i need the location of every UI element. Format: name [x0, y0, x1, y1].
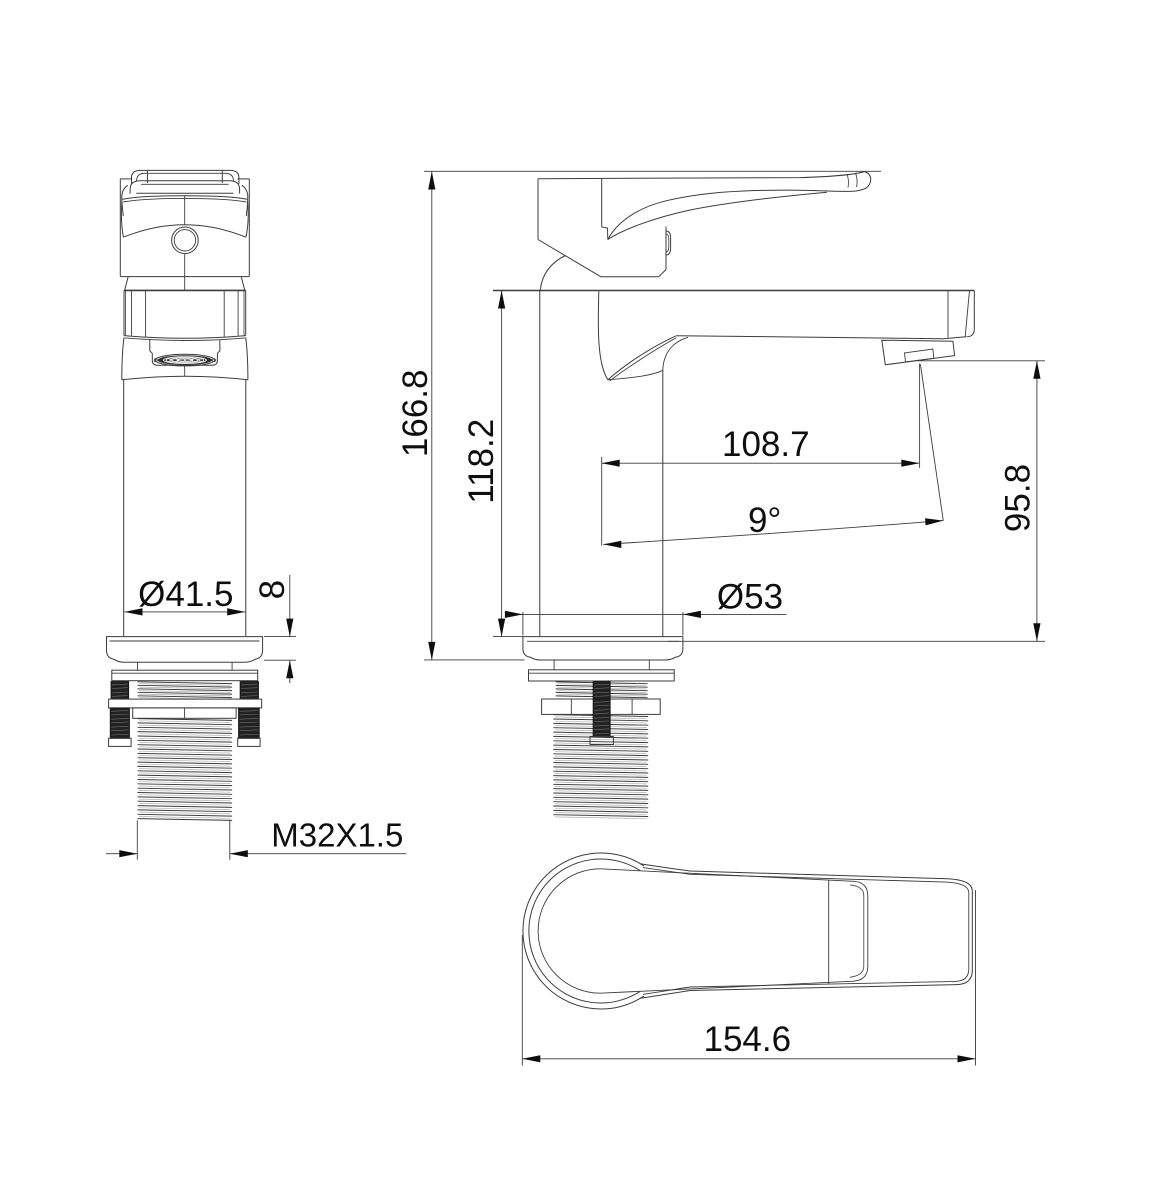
svg-text:154.6: 154.6 — [704, 1020, 792, 1059]
svg-text:Ø53: Ø53 — [717, 577, 783, 616]
svg-text:M32X1.5: M32X1.5 — [271, 817, 403, 854]
svg-text:Ø41.5: Ø41.5 — [138, 575, 233, 614]
svg-text:9°: 9° — [748, 501, 781, 540]
svg-text:95.8: 95.8 — [999, 464, 1038, 532]
svg-text:118.2: 118.2 — [462, 419, 501, 504]
svg-text:166.8: 166.8 — [396, 370, 435, 458]
svg-text:8: 8 — [253, 580, 292, 599]
svg-text:108.7: 108.7 — [722, 425, 810, 464]
